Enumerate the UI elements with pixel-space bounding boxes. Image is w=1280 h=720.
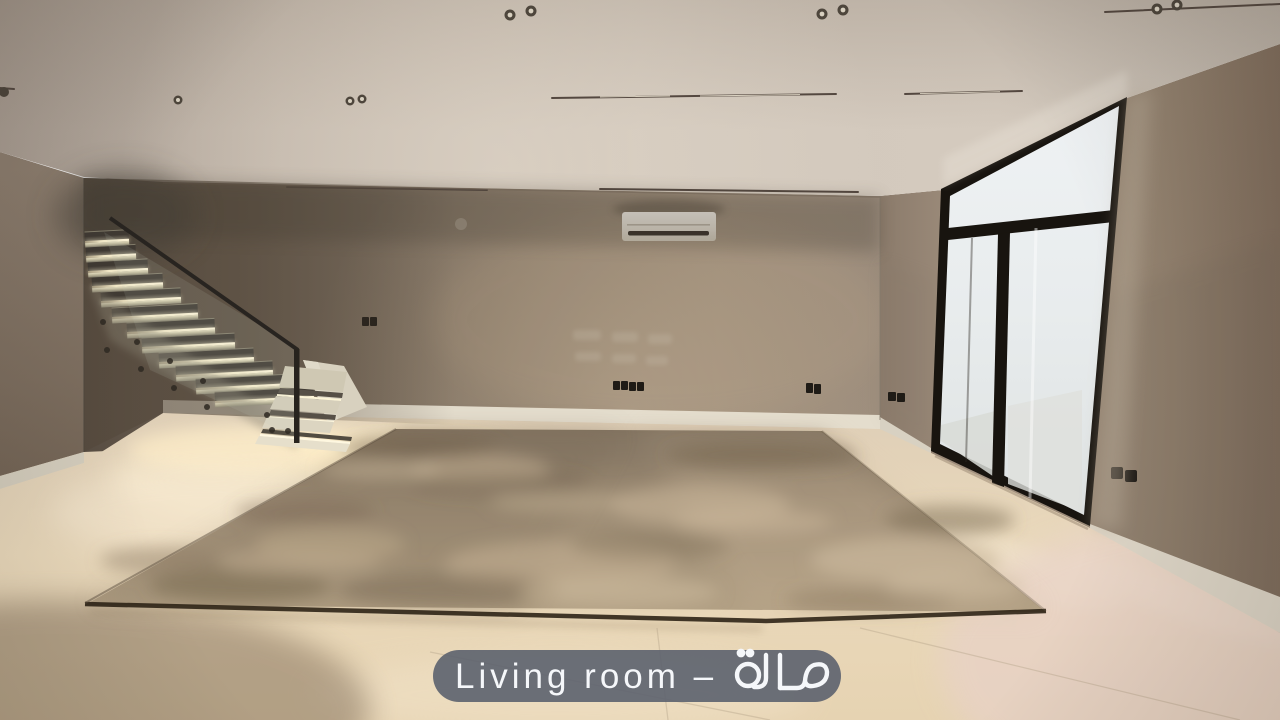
svg-text:Living room –: Living room – [455, 657, 717, 696]
